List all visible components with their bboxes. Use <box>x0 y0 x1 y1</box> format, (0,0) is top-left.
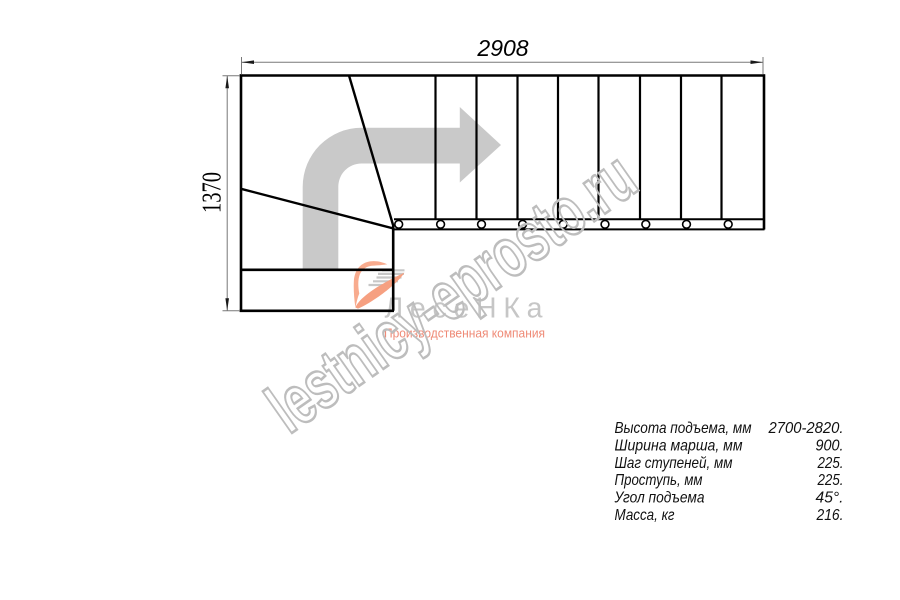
svg-text:Проступь, мм: Проступь, мм <box>615 472 703 489</box>
svg-text:Высота подъема, мм: Высота подъема, мм <box>615 420 752 437</box>
svg-text:Шаг ступеней, мм: Шаг ступеней, мм <box>615 455 733 472</box>
svg-text:216.: 216. <box>816 507 844 524</box>
svg-text:225.: 225. <box>817 455 844 472</box>
svg-text:1370: 1370 <box>196 172 227 213</box>
svg-text:Угол подъема: Угол подъема <box>614 490 705 507</box>
svg-text:225.: 225. <box>817 472 844 489</box>
svg-text:45°.: 45°. <box>816 490 844 507</box>
svg-text:Масса, кг: Масса, кг <box>615 507 675 524</box>
svg-text:2700-2820.: 2700-2820. <box>768 420 844 437</box>
svg-text:900.: 900. <box>816 437 844 454</box>
svg-text:2908: 2908 <box>476 35 528 61</box>
svg-text:Ширина марша, мм: Ширина марша, мм <box>615 437 743 454</box>
